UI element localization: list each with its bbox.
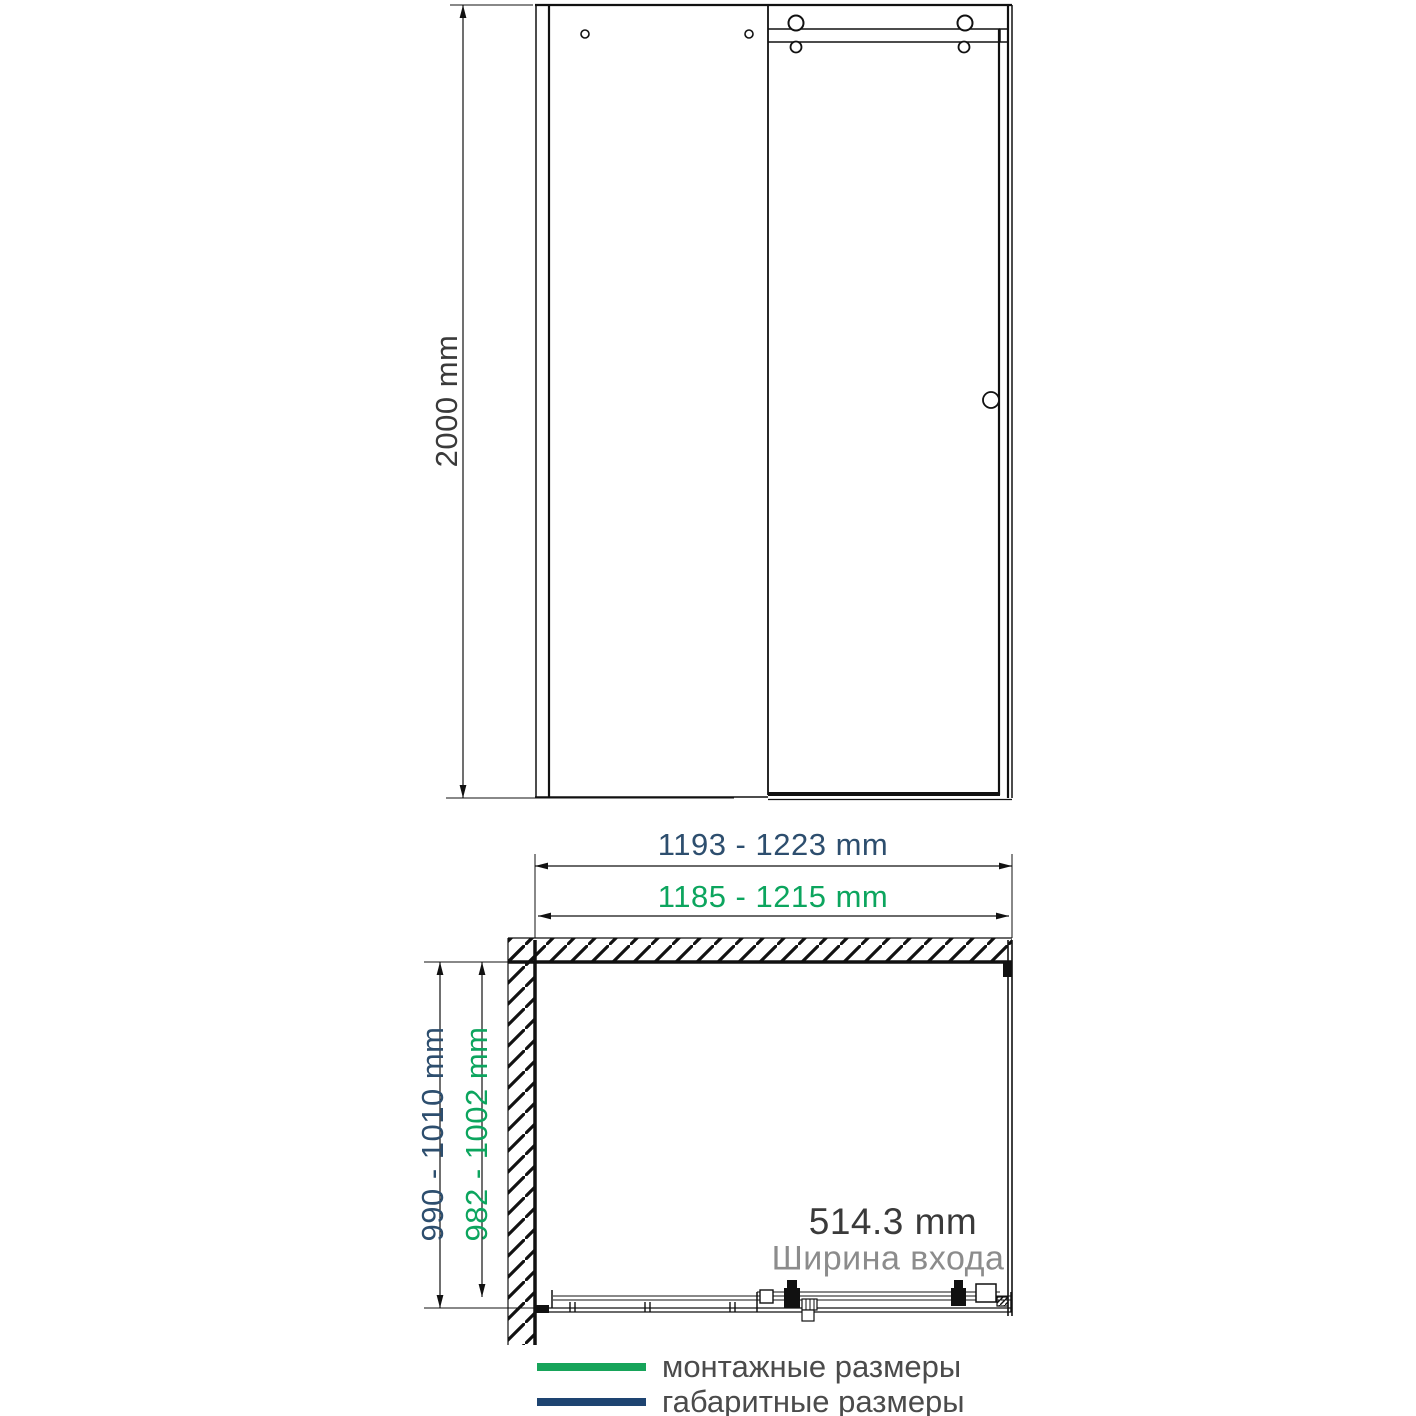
legend-label-mounting: монтажные размеры: [662, 1349, 961, 1385]
plan-view-drawing: [508, 938, 1012, 1345]
plan-bottom-track: [535, 1280, 1012, 1321]
mounting-dimensions-swatch: [537, 1363, 646, 1371]
legend-label-overall: габаритные размеры: [662, 1384, 965, 1416]
overall-dimensions-swatch: [537, 1398, 646, 1406]
overall-depth-dimension-label: 990 - 1010 mm: [415, 1027, 451, 1242]
legend: монтажные размеры габаритные размеры: [537, 1349, 965, 1416]
overall-width-dimension-label: 1193 - 1223 mm: [658, 827, 888, 863]
front-elevation-drawing: [535, 5, 1012, 800]
legend-item-overall: габаритные размеры: [537, 1384, 965, 1416]
legend-item-mounting: монтажные размеры: [537, 1349, 965, 1384]
shower-door-technical-drawing: 2000 mm 1193 - 1223 mm 1185 - 1215 mm 99…: [0, 0, 1416, 1416]
drawing-canvas: [0, 0, 1416, 1416]
entrance-width-caption: Ширина входа: [772, 1240, 1005, 1279]
entrance-width-value: 514.3 mm: [809, 1201, 978, 1243]
height-dimension-lines: [446, 5, 734, 798]
door-handle: [983, 392, 999, 408]
height-dimension-label: 2000 mm: [429, 335, 465, 468]
mounting-depth-dimension-label: 982 - 1002 mm: [459, 1027, 495, 1242]
mounting-width-dimension-label: 1185 - 1215 mm: [658, 879, 888, 915]
